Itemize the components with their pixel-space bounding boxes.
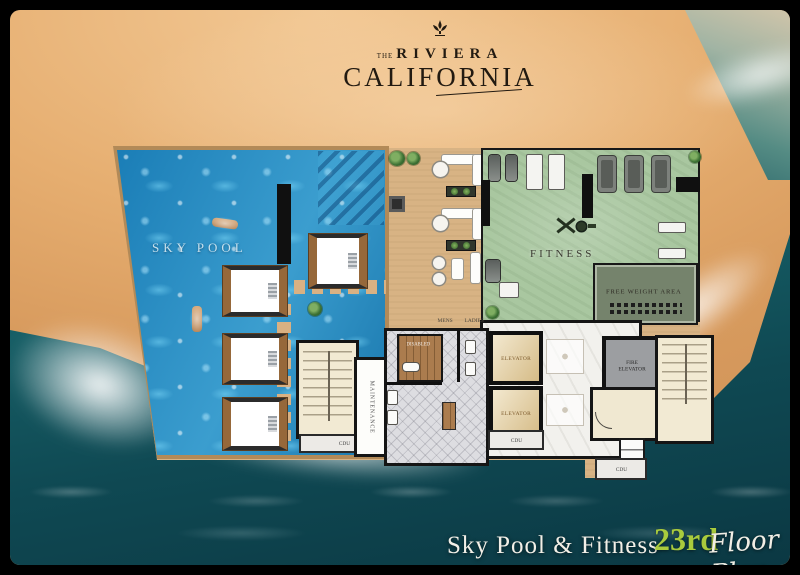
palm-plant: [389, 151, 405, 166]
disabled-wc-label: DISABLED: [407, 341, 431, 346]
deck-stool: [433, 273, 445, 285]
toilet-fixture: [387, 390, 398, 405]
fitness-label: FITNESS: [530, 248, 594, 260]
gym-bike: [506, 155, 517, 181]
changing-bench: [442, 402, 456, 430]
right-staircase: [655, 335, 714, 444]
elevator-upper-label: ELEVATOR: [501, 355, 531, 361]
free-weight-label: FREE WEIGHT AREA: [606, 288, 682, 295]
gym-machine: [486, 260, 500, 282]
partition-wall: [457, 330, 460, 382]
disabled-wc: DISABLED: [397, 334, 443, 382]
dumbbell-rack: [610, 303, 682, 307]
dumbbell-rack: [610, 310, 682, 314]
planter-box: [447, 241, 475, 250]
fitness-wall: [481, 180, 490, 226]
cdu-right-label: CDU: [615, 466, 626, 472]
logo-ornament-icon: [429, 20, 451, 40]
gym-bike: [489, 155, 500, 181]
pool-cabana: [223, 398, 287, 450]
brand-logo: THE RIVIERA CALIFORNIA: [340, 20, 540, 93]
swimmer: [192, 306, 202, 332]
pool-cabana: [223, 266, 287, 316]
cdu-left-label: CDU: [338, 440, 349, 446]
gym-machine: [499, 282, 519, 298]
pool-shade-wall: [277, 184, 291, 264]
grill-station: [389, 196, 405, 212]
fitness-plant: [689, 151, 701, 163]
gym-lounger: [652, 156, 670, 192]
mens-label: MENS: [438, 317, 453, 323]
toilet-fixture: [387, 410, 398, 425]
elevator-upper: ELEVATOR: [489, 331, 543, 385]
deck-table: [433, 162, 448, 177]
pool-cabana: [309, 234, 367, 288]
gym-cable-machine: [553, 210, 597, 244]
cdu-center: CDU: [488, 430, 544, 450]
fitness-wall: [676, 177, 700, 192]
brochure-page: THE RIVIERA CALIFORNIA SKY POOL: [0, 0, 800, 575]
sky-pool-label: SKY POOL: [152, 240, 247, 256]
caption-title: Sky Pool & Fitness: [447, 532, 659, 560]
brand-california: CALIFORNIA: [340, 63, 540, 91]
deck-table: [433, 216, 448, 231]
gym-treadmill: [526, 154, 543, 190]
elevator-lower-label: ELEVATOR: [501, 410, 531, 416]
brand-riviera: RIVIERA: [396, 46, 503, 63]
left-staircase: [296, 340, 359, 439]
sink-fixture: [465, 340, 476, 354]
beach-photo: THE RIVIERA CALIFORNIA SKY POOL: [10, 10, 790, 565]
caption-floor-plan: Floor Plan: [708, 524, 790, 565]
gym-treadmill: [548, 154, 565, 190]
cdu-right: CDU: [595, 458, 647, 480]
sink-fixture: [465, 362, 476, 376]
planter-box: [447, 187, 475, 196]
fire-elevator-label: FIRE ELEVATOR: [618, 359, 645, 372]
floor-medallion: [546, 339, 584, 374]
pool-cabana: [223, 334, 287, 384]
gym-lounger: [598, 156, 616, 192]
fitness-plant: [486, 306, 499, 319]
gym-lounger: [625, 156, 643, 192]
swimmer: [212, 217, 239, 230]
gym-bench-press: [658, 248, 686, 259]
partition-wall: [386, 382, 442, 385]
cdu-center-label: CDU: [510, 437, 521, 443]
pool-steps: [318, 151, 384, 225]
maintenance-label: MAINTENANCE: [369, 381, 376, 434]
palm-plant: [407, 152, 420, 165]
floor-medallion: [546, 394, 584, 426]
gym-bench-press: [658, 222, 686, 233]
deck-stool: [433, 257, 445, 269]
deck-sofa: [471, 253, 480, 283]
ladies-label: LADIES: [465, 317, 484, 323]
palm-plant: [308, 302, 322, 316]
deck-table: [452, 259, 463, 279]
